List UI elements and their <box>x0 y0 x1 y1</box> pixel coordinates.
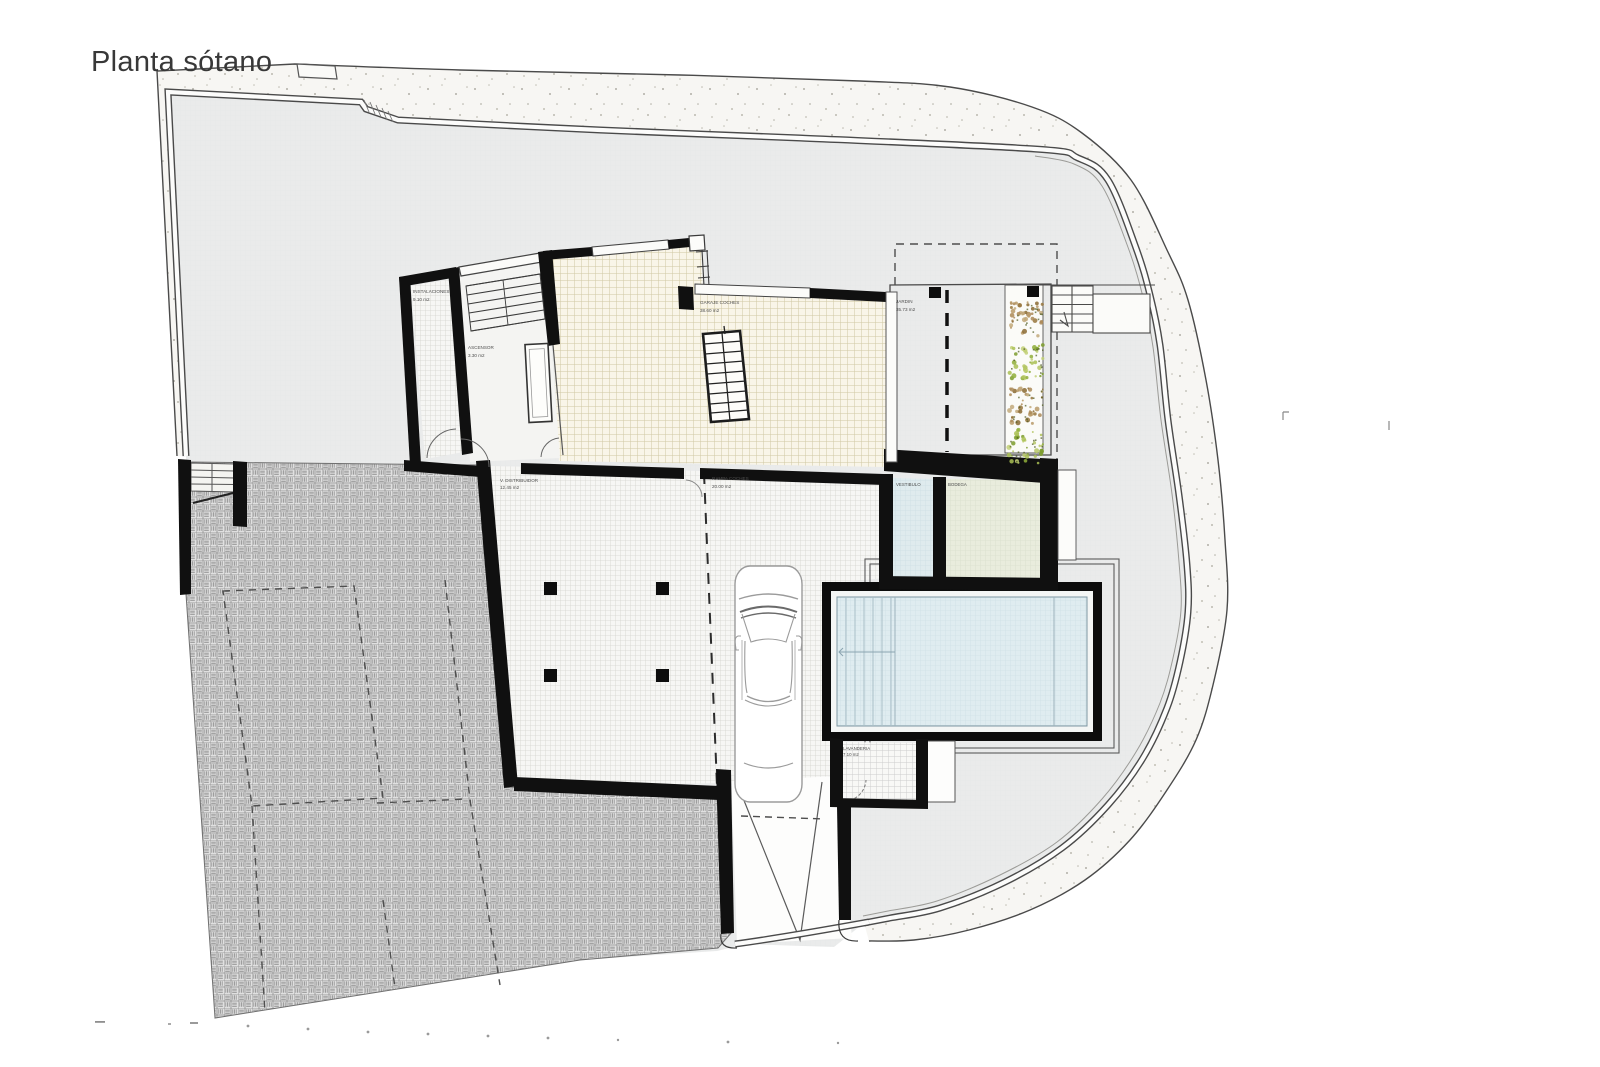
svg-text:Planta sótano: Planta sótano <box>91 46 272 78</box>
svg-text:9.10 m2: 9.10 m2 <box>413 297 430 302</box>
svg-text:35.73 m2: 35.73 m2 <box>896 307 916 312</box>
svg-text:12.45 m2: 12.45 m2 <box>500 485 520 490</box>
svg-text:GARAJE COCHES: GARAJE COCHES <box>700 300 739 305</box>
svg-text:LAVANDERIA: LAVANDERIA <box>843 746 870 751</box>
svg-text:ASCENSOR: ASCENSOR <box>468 345 494 350</box>
svg-text:BODEGA: BODEGA <box>948 482 967 487</box>
svg-text:INSTALACIONES: INSTALACIONES <box>413 289 449 294</box>
svg-text:7.10 m2: 7.10 m2 <box>843 752 859 757</box>
svg-text:VESTIBULO: VESTIBULO <box>896 482 921 487</box>
svg-text:V. DISTRIBUIDOR: V. DISTRIBUIDOR <box>500 478 539 483</box>
svg-text:20.00 m2: 20.00 m2 <box>712 484 732 489</box>
svg-text:RAMPA COCHES: RAMPA COCHES <box>712 476 749 481</box>
svg-text:38.60 m2: 38.60 m2 <box>700 308 720 313</box>
svg-text:JARDIN: JARDIN <box>896 299 913 304</box>
svg-text:3.30 m2: 3.30 m2 <box>468 353 485 358</box>
